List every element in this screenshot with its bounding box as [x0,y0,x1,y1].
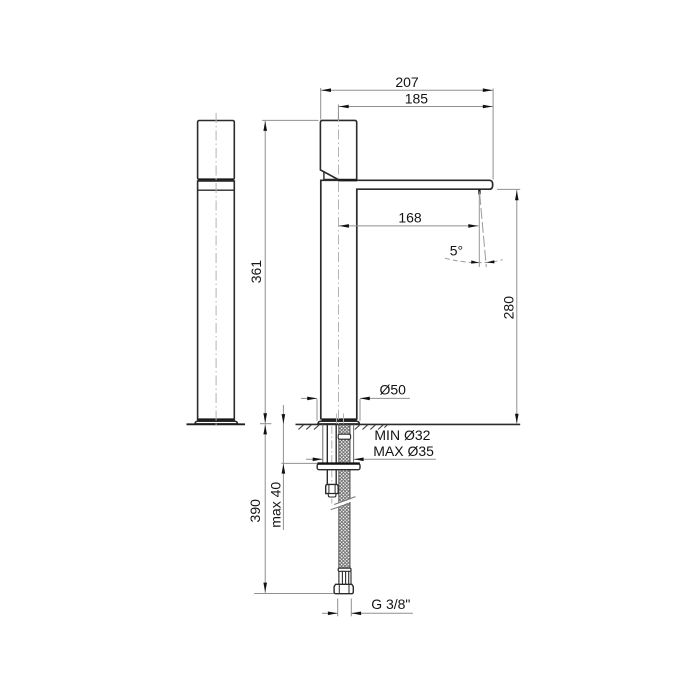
svg-text:MIN Ø32: MIN Ø32 [374,427,430,443]
svg-text:5°: 5° [450,243,463,259]
svg-text:G 3/8": G 3/8" [371,596,410,612]
svg-text:Ø50: Ø50 [379,381,406,397]
svg-text:361: 361 [248,260,264,284]
svg-text:390: 390 [247,499,263,523]
svg-text:168: 168 [398,210,422,226]
svg-text:185: 185 [405,91,429,107]
svg-text:280: 280 [500,296,516,320]
svg-text:MAX Ø35: MAX Ø35 [373,443,434,459]
svg-text:max 40: max 40 [268,482,284,528]
svg-text:207: 207 [395,74,419,90]
